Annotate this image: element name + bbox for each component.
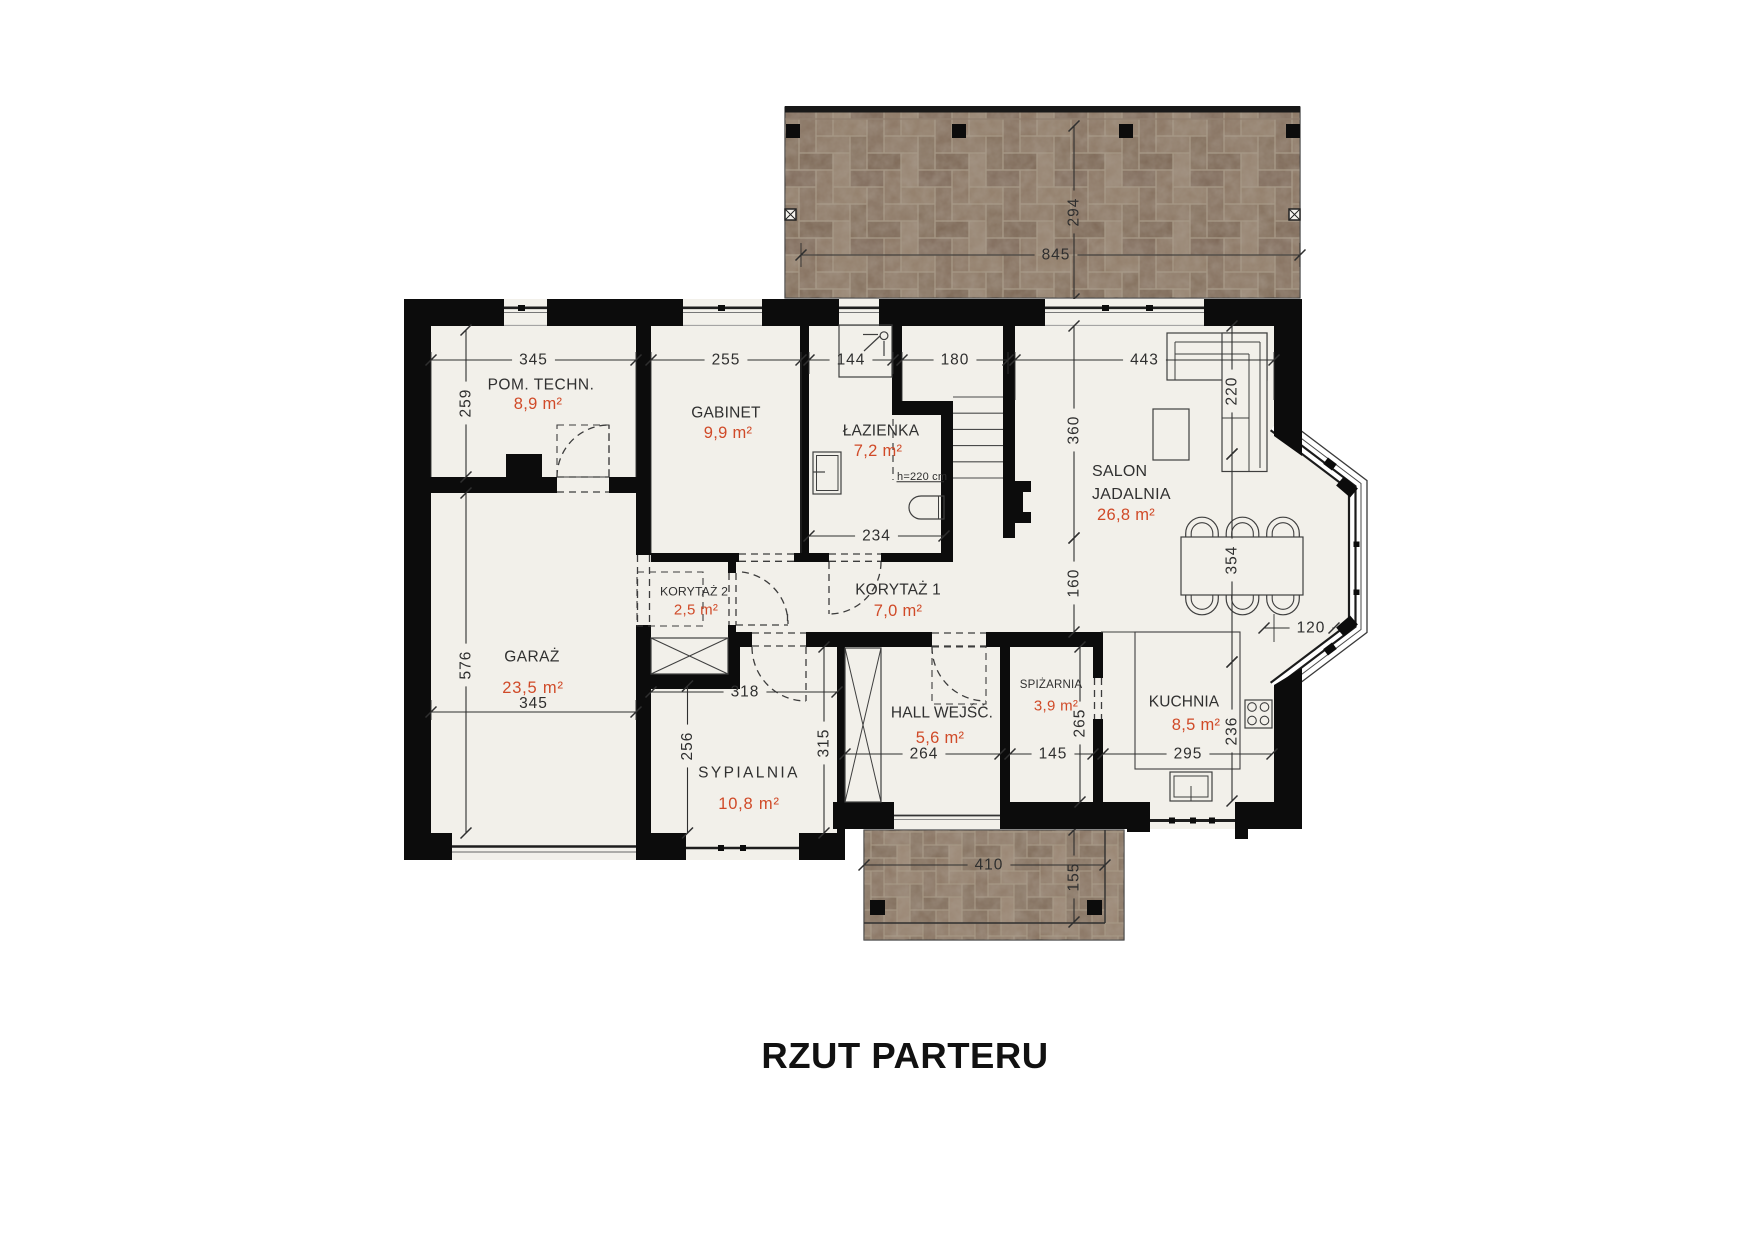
svg-text:GABINET: GABINET bbox=[691, 405, 761, 422]
svg-text:ŁAZIENKA: ŁAZIENKA bbox=[843, 423, 920, 440]
svg-text:180: 180 bbox=[941, 352, 970, 369]
svg-text:SALON: SALON bbox=[1092, 463, 1147, 480]
svg-text:576: 576 bbox=[458, 651, 475, 680]
svg-text:318: 318 bbox=[731, 684, 760, 701]
svg-text:345: 345 bbox=[519, 695, 548, 712]
svg-text:255: 255 bbox=[712, 352, 741, 369]
svg-text:KORYTAŻ 1: KORYTAŻ 1 bbox=[855, 581, 941, 599]
svg-text:256: 256 bbox=[679, 732, 696, 761]
svg-text:26,8 m²: 26,8 m² bbox=[1097, 506, 1155, 524]
svg-text:HALL WEJŚĆ.: HALL WEJŚĆ. bbox=[891, 704, 993, 722]
svg-text:236: 236 bbox=[1224, 717, 1241, 746]
svg-text:RZUT PARTERU: RZUT PARTERU bbox=[761, 1035, 1048, 1076]
svg-text:220: 220 bbox=[1224, 377, 1241, 406]
svg-text:294: 294 bbox=[1066, 198, 1083, 227]
svg-text:SYPIALNIA: SYPIALNIA bbox=[698, 765, 800, 782]
svg-text:GARAŻ: GARAŻ bbox=[504, 648, 559, 666]
svg-text:10,8 m²: 10,8 m² bbox=[718, 795, 780, 813]
svg-text:295: 295 bbox=[1174, 746, 1203, 763]
svg-text:SPIŻARNIA: SPIŻARNIA bbox=[1020, 678, 1083, 691]
svg-text:KUCHNIA: KUCHNIA bbox=[1149, 694, 1220, 711]
svg-text:8,5 m²: 8,5 m² bbox=[1172, 716, 1221, 734]
svg-text:264: 264 bbox=[910, 746, 939, 763]
svg-text:7,0 m²: 7,0 m² bbox=[874, 602, 923, 620]
svg-text:POM. TECHN.: POM. TECHN. bbox=[488, 377, 595, 394]
svg-text:9,9 m²: 9,9 m² bbox=[704, 424, 753, 442]
svg-text:5,6 m²: 5,6 m² bbox=[916, 729, 965, 747]
svg-text:KORYTAŻ 2: KORYTAŻ 2 bbox=[660, 584, 728, 598]
svg-text:144: 144 bbox=[837, 352, 866, 369]
svg-text:145: 145 bbox=[1039, 746, 1068, 763]
svg-text:JADALNIA: JADALNIA bbox=[1092, 486, 1171, 503]
svg-text:155: 155 bbox=[1066, 863, 1083, 892]
svg-text:120: 120 bbox=[1297, 620, 1326, 637]
svg-text:315: 315 bbox=[816, 729, 833, 758]
svg-text:2,5 m²: 2,5 m² bbox=[674, 601, 718, 618]
svg-text:265: 265 bbox=[1072, 709, 1089, 738]
svg-text:259: 259 bbox=[458, 389, 475, 418]
svg-text:845: 845 bbox=[1042, 247, 1071, 264]
svg-text:360: 360 bbox=[1066, 416, 1083, 445]
svg-text:160: 160 bbox=[1066, 569, 1083, 598]
svg-text:234: 234 bbox=[862, 528, 891, 545]
svg-text:443: 443 bbox=[1130, 352, 1159, 369]
svg-text:345: 345 bbox=[519, 352, 548, 369]
svg-text:410: 410 bbox=[975, 857, 1004, 874]
svg-text:8,9 m²: 8,9 m² bbox=[514, 395, 563, 413]
svg-text:7,2 m²: 7,2 m² bbox=[854, 442, 903, 460]
svg-text:354: 354 bbox=[1224, 546, 1241, 575]
